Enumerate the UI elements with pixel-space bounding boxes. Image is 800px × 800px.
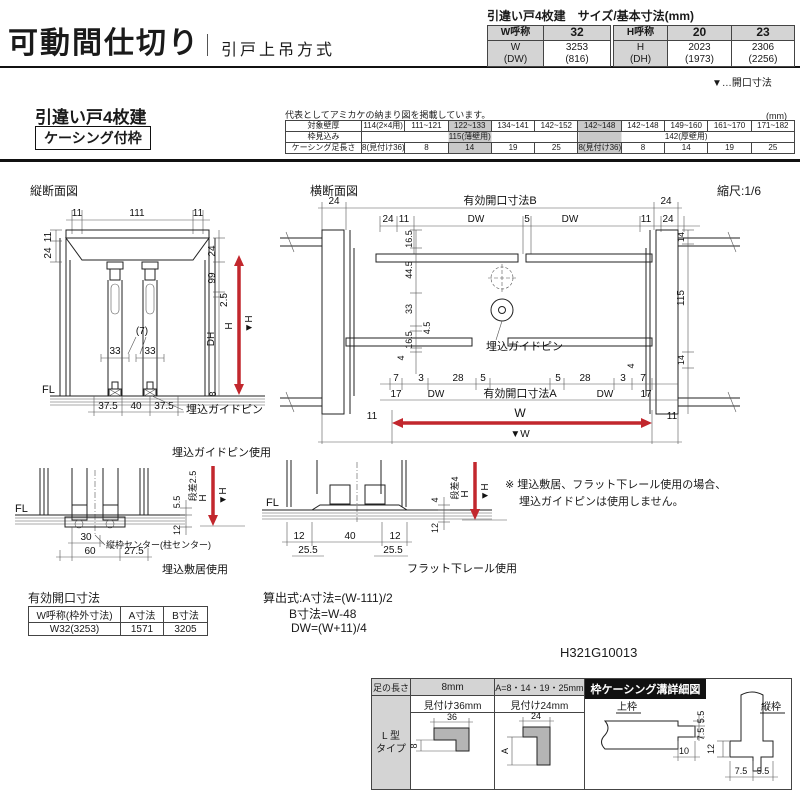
wall-row3-label: ケーシング足長さ bbox=[286, 143, 362, 154]
opening-header: A寸法 bbox=[121, 607, 164, 623]
svg-text:30: 30 bbox=[80, 532, 92, 543]
vertical-section-drawing: 11 111 11 11 24 bbox=[30, 196, 270, 436]
l-profile-36-drawing: 36 8 bbox=[411, 713, 494, 788]
svg-text:5: 5 bbox=[524, 214, 530, 225]
svg-text:4: 4 bbox=[396, 355, 406, 360]
wall-cell-shaded: 8(見付け36) bbox=[578, 143, 621, 154]
sill-panels bbox=[40, 468, 148, 535]
svg-text:DH: DH bbox=[206, 332, 217, 346]
svg-text:埋込ガイドピン: 埋込ガイドピン bbox=[486, 340, 563, 353]
opening-table-title: 有効開口寸法 bbox=[28, 589, 100, 606]
wall-cell: 142~148 bbox=[621, 121, 664, 132]
wall-cell: 161~170 bbox=[708, 121, 751, 132]
svg-text:44.5: 44.5 bbox=[404, 261, 414, 279]
svg-text:有効開口寸法A: 有効開口寸法A bbox=[483, 386, 557, 400]
svg-text:H: H bbox=[224, 322, 235, 329]
svg-text:4: 4 bbox=[430, 497, 440, 502]
casing-groove-drawing: 上枠 5.5 7.5 10 縦枠 bbox=[585, 679, 796, 788]
svg-text:DW: DW bbox=[428, 389, 445, 400]
hs-bottom-chain: 7 3 28 5 5 28 3 7 17 DW 有効開口寸法A DW 17 bbox=[380, 373, 678, 400]
svg-text:A: A bbox=[500, 748, 510, 754]
svg-text:7: 7 bbox=[393, 373, 399, 384]
svg-text:115: 115 bbox=[676, 290, 687, 306]
vs-guide-pins bbox=[109, 382, 156, 396]
svg-text:3: 3 bbox=[620, 373, 626, 384]
svg-text:縦枠: 縦枠 bbox=[761, 700, 781, 713]
vs-mid-dimension: (7) 33 33 bbox=[101, 326, 164, 362]
opening-table: W呼称(枠外寸法) A寸法 B寸法 W32(3253) 1571 3205 bbox=[28, 606, 208, 636]
svg-text:11: 11 bbox=[667, 411, 678, 422]
sill-height-arrow: H ▼H bbox=[198, 466, 245, 526]
detail-sill-drawing: 埋込ガイドピン使用 FL 段差2.5 5.5 12 H ▼H 3 bbox=[10, 440, 280, 585]
opening-header: W呼称(枠外寸法) bbox=[29, 607, 121, 623]
rail-side-dims: 段差4 4 12 bbox=[430, 476, 460, 533]
svg-text:17: 17 bbox=[390, 389, 402, 400]
wall-cell-shaded: 122~133 bbox=[448, 121, 491, 132]
rail-floor bbox=[262, 505, 492, 519]
sill-pin-title: 埋込ガイドピン使用 bbox=[172, 446, 271, 459]
horizontal-section-drawing: 24 有効開口寸法B 24 24 11 DW 5 DW 11 24 bbox=[280, 192, 800, 444]
formula-line3: DW=(W+11)/4 bbox=[291, 621, 367, 635]
vs-left-dimension: 11 24 bbox=[43, 230, 62, 262]
svg-text:DW: DW bbox=[468, 214, 485, 225]
svg-text:12: 12 bbox=[293, 531, 305, 542]
svg-text:14: 14 bbox=[676, 232, 686, 242]
l-profile-24-cell: 24 A bbox=[495, 713, 584, 790]
svg-text:25.5: 25.5 bbox=[383, 545, 403, 556]
page-title: 可動間仕切り bbox=[8, 18, 200, 62]
svg-text:14: 14 bbox=[676, 355, 686, 365]
wall-thin-span: 115(薄壁用) bbox=[362, 132, 578, 143]
usage-note: ※ 埋込敷居、フラット下レール使用の場合、 埋込ガイドピンは使用しません。 bbox=[505, 477, 726, 511]
svg-text:H: H bbox=[198, 494, 209, 501]
svg-text:11: 11 bbox=[367, 411, 378, 422]
side-jamb-detail: 縦枠 12 7.5 5.5 bbox=[706, 692, 785, 781]
hs-door-panels bbox=[346, 254, 652, 346]
svg-text:25.5: 25.5 bbox=[298, 545, 318, 556]
rail-caption: フラット下レール使用 bbox=[407, 562, 517, 575]
wall-spec-table: 対象壁厚 114(2×4用) 111~121 122~133 134~141 1… bbox=[285, 120, 795, 154]
l-profile-24-drawing: 24 A bbox=[495, 713, 575, 788]
svg-text:33: 33 bbox=[144, 346, 156, 357]
leg-col2-subheader: 見付け24mm bbox=[495, 696, 584, 713]
svg-text:24: 24 bbox=[660, 196, 672, 207]
svg-text:埋込ガイドピン: 埋込ガイドピン bbox=[186, 403, 263, 416]
hs-right-jamb bbox=[646, 230, 740, 414]
wall-cell: 25 bbox=[535, 143, 578, 154]
wall-cell: 19 bbox=[491, 143, 534, 154]
svg-text:16.5: 16.5 bbox=[404, 230, 414, 248]
vs-right-dimension: 24 99 2.5 DH 8 bbox=[206, 230, 230, 397]
frame-type-box: ケーシング付枠 bbox=[35, 126, 151, 150]
svg-text:4.5: 4.5 bbox=[422, 322, 432, 335]
wall-cell: 19 bbox=[708, 143, 751, 154]
svg-text:H: H bbox=[460, 490, 471, 497]
svg-text:11: 11 bbox=[641, 214, 652, 225]
variant-title: 引違い戸4枚建 bbox=[35, 103, 146, 128]
svg-text:11: 11 bbox=[193, 208, 204, 219]
vs-opening-height-arrow: H ▼H bbox=[224, 255, 255, 395]
hs-row2-dimension: 24 11 DW 5 DW 11 24 bbox=[380, 214, 700, 254]
svg-text:37.5: 37.5 bbox=[98, 401, 118, 412]
svg-text:DW: DW bbox=[562, 214, 579, 225]
leg-corner-label: 足の長さ bbox=[372, 679, 411, 696]
wall-cell: 134~141 bbox=[491, 121, 534, 132]
w-size-table: W呼称 32 W(DW) 3253(816) bbox=[487, 25, 611, 67]
opening-cell: W32(3253) bbox=[29, 623, 121, 636]
svg-text:33: 33 bbox=[404, 304, 414, 314]
h-name-value-20: 20 bbox=[668, 26, 732, 41]
svg-text:▼H: ▼H bbox=[218, 487, 229, 504]
svg-text:17: 17 bbox=[640, 389, 652, 400]
svg-text:8: 8 bbox=[208, 391, 218, 396]
svg-text:有効開口寸法B: 有効開口寸法B bbox=[463, 193, 536, 207]
svg-text:5: 5 bbox=[555, 373, 561, 384]
h-size-table: H呼称 20 23 H(DH) 2023(1973) 2306(2256) bbox=[613, 25, 795, 67]
wall-cell: 8(見付け36) bbox=[362, 143, 405, 154]
leg-length-table: 足の長さ 8mm A=8・14・19・25mm 枠ケーシング溝詳細図 上枠 5.… bbox=[371, 678, 792, 790]
svg-text:12: 12 bbox=[706, 744, 716, 754]
usage-note-line1: ※ 埋込敷居、フラット下レール使用の場合、 bbox=[505, 477, 726, 494]
svg-text:DW: DW bbox=[597, 389, 614, 400]
h-name-value-23: 23 bbox=[732, 26, 795, 41]
svg-text:段差2.5: 段差2.5 bbox=[187, 471, 198, 502]
svg-text:上枠: 上枠 bbox=[617, 700, 637, 713]
svg-text:▼H: ▼H bbox=[480, 483, 491, 500]
svg-text:12: 12 bbox=[389, 531, 401, 542]
sill-floor bbox=[15, 515, 185, 527]
wall-cell: 8 bbox=[621, 143, 664, 154]
wall-cell: 114(2×4用) bbox=[362, 121, 405, 132]
head-jamb-detail: 上枠 5.5 7.5 10 bbox=[601, 700, 706, 761]
l-type-label: L 型タイプ bbox=[372, 696, 411, 790]
sill-fl-label: FL bbox=[15, 503, 28, 515]
opening-cell: 3205 bbox=[164, 623, 208, 636]
rail-height-arrow: H ▼H bbox=[460, 462, 507, 520]
hs-guide-pin: 埋込ガイドピン bbox=[486, 264, 563, 353]
svg-text:W: W bbox=[514, 406, 526, 420]
wall-cell: 142~152 bbox=[535, 121, 578, 132]
h-name-header: H呼称 bbox=[614, 26, 668, 41]
wall-cell: 8 bbox=[405, 143, 448, 154]
svg-text:段差4: 段差4 bbox=[449, 476, 460, 499]
svg-text:2.5: 2.5 bbox=[219, 293, 230, 307]
hs-right-chain: 14 115 14 4 bbox=[626, 230, 694, 414]
svg-text:7: 7 bbox=[640, 373, 646, 384]
svg-text:3: 3 bbox=[418, 373, 424, 384]
drawing-number: H321G10013 bbox=[560, 645, 637, 660]
svg-text:4: 4 bbox=[626, 363, 636, 368]
svg-text:11: 11 bbox=[399, 214, 410, 225]
svg-text:24: 24 bbox=[328, 196, 340, 207]
svg-text:24: 24 bbox=[662, 214, 674, 225]
detail-rail-drawing: FL 段差4 4 12 H ▼H 12 40 12 25.5 25.5 フラット… bbox=[262, 452, 520, 582]
svg-text:28: 28 bbox=[452, 373, 464, 384]
svg-text:(7): (7) bbox=[136, 326, 148, 337]
w-dim-value: 3253(816) bbox=[544, 41, 611, 67]
formula-line2: B寸法=W-48 bbox=[289, 605, 356, 622]
svg-text:11: 11 bbox=[72, 208, 83, 219]
h-dim-label: H(DH) bbox=[614, 41, 668, 67]
svg-text:40: 40 bbox=[130, 401, 142, 412]
wall-row1-label: 対象壁厚 bbox=[286, 121, 362, 132]
wall-cell: 171~182 bbox=[751, 121, 794, 132]
leg-col1-subheader: 見付け36mm bbox=[410, 696, 494, 713]
svg-text:16.5: 16.5 bbox=[404, 331, 414, 349]
title-divider bbox=[207, 34, 208, 56]
hs-left-jamb bbox=[280, 230, 354, 414]
vs-door-panels bbox=[108, 280, 157, 396]
vs-fl-label: FL bbox=[42, 384, 55, 396]
svg-text:11: 11 bbox=[43, 231, 54, 242]
page-subtitle: 引戸上吊方式 bbox=[221, 36, 335, 60]
svg-text:99: 99 bbox=[207, 272, 218, 284]
wall-cell: 111~121 bbox=[405, 121, 448, 132]
svg-text:5.5: 5.5 bbox=[172, 496, 182, 509]
wall-row2-label: 枠見込み bbox=[286, 132, 362, 143]
size-spec-heading: 引違い戸4枚建 サイズ/基本寸法(mm) bbox=[487, 7, 694, 24]
svg-text:40: 40 bbox=[344, 531, 356, 542]
vs-lintel bbox=[66, 230, 209, 260]
casing-detail-cell: 枠ケーシング溝詳細図 上枠 5.5 7.5 10 縦枠 bbox=[584, 679, 791, 790]
svg-text:37.5: 37.5 bbox=[154, 401, 174, 412]
h-dim-value-20: 2023(1973) bbox=[668, 41, 732, 67]
sill-caption: 埋込敷居使用 bbox=[162, 562, 228, 576]
svg-text:10: 10 bbox=[679, 746, 689, 756]
svg-text:▼H: ▼H bbox=[244, 315, 255, 332]
wall-cell: 25 bbox=[751, 143, 794, 154]
svg-text:36: 36 bbox=[447, 712, 457, 722]
wall-cell: 14 bbox=[665, 143, 708, 154]
wall-thick-span: 142(厚壁用) bbox=[578, 132, 795, 143]
svg-text:5: 5 bbox=[480, 373, 486, 384]
vs-walls bbox=[60, 238, 215, 396]
vs-hanger-rollers bbox=[107, 262, 158, 280]
w-dim-label: W(DW) bbox=[488, 41, 544, 67]
svg-text:24: 24 bbox=[382, 214, 394, 225]
opening-legend: ▼…開口寸法 bbox=[712, 74, 772, 89]
svg-text:縦枠センター(柱センター): 縦枠センター(柱センター) bbox=[106, 539, 211, 550]
wall-cell: 149~160 bbox=[665, 121, 708, 132]
svg-text:24: 24 bbox=[43, 247, 54, 259]
leg-col2-header: A=8・14・19・25mm bbox=[495, 679, 584, 696]
svg-text:24: 24 bbox=[207, 245, 218, 257]
svg-text:12: 12 bbox=[430, 523, 440, 533]
svg-text:7.5: 7.5 bbox=[696, 728, 706, 741]
rail-fl-label: FL bbox=[266, 497, 279, 509]
svg-text:28: 28 bbox=[579, 373, 591, 384]
svg-text:5.5: 5.5 bbox=[696, 711, 706, 724]
svg-text:60: 60 bbox=[84, 546, 96, 557]
sill-bottom-dims: 30 60 27.5 縦枠センター(柱センター) bbox=[56, 527, 211, 561]
hs-top-dimension: 24 有効開口寸法B 24 bbox=[318, 193, 682, 230]
svg-text:5.5: 5.5 bbox=[756, 766, 769, 776]
opening-header: B寸法 bbox=[164, 607, 208, 623]
section-divider bbox=[0, 159, 800, 162]
usage-note-line2: 埋込ガイドピンは使用しません。 bbox=[505, 494, 726, 511]
svg-text:12: 12 bbox=[172, 525, 182, 535]
svg-text:111: 111 bbox=[129, 208, 145, 219]
hs-opening-width-arrow: 11 W 11 ▼W bbox=[318, 406, 682, 444]
w-name-value: 32 bbox=[544, 26, 611, 41]
wall-cell-shaded: 142~148 bbox=[578, 121, 621, 132]
h-dim-value-23: 2306(2256) bbox=[732, 41, 795, 67]
formula-line1: 算出式:A寸法=(W-111)/2 bbox=[263, 589, 393, 606]
svg-text:8: 8 bbox=[409, 743, 419, 748]
sill-side-dims: 段差2.5 5.5 12 bbox=[172, 471, 198, 535]
svg-text:7.5: 7.5 bbox=[734, 766, 747, 776]
w-name-header: W呼称 bbox=[488, 26, 544, 41]
opening-cell: 1571 bbox=[121, 623, 164, 636]
wall-cell-shaded: 14 bbox=[448, 143, 491, 154]
svg-text:24: 24 bbox=[531, 711, 541, 721]
svg-text:33: 33 bbox=[109, 346, 121, 357]
svg-text:▼W: ▼W bbox=[510, 429, 530, 440]
rail-bottom-dims: 12 40 12 25.5 25.5 bbox=[282, 522, 412, 556]
leg-col1-header: 8mm bbox=[410, 679, 494, 696]
l-profile-36-cell: 36 8 bbox=[410, 713, 494, 790]
